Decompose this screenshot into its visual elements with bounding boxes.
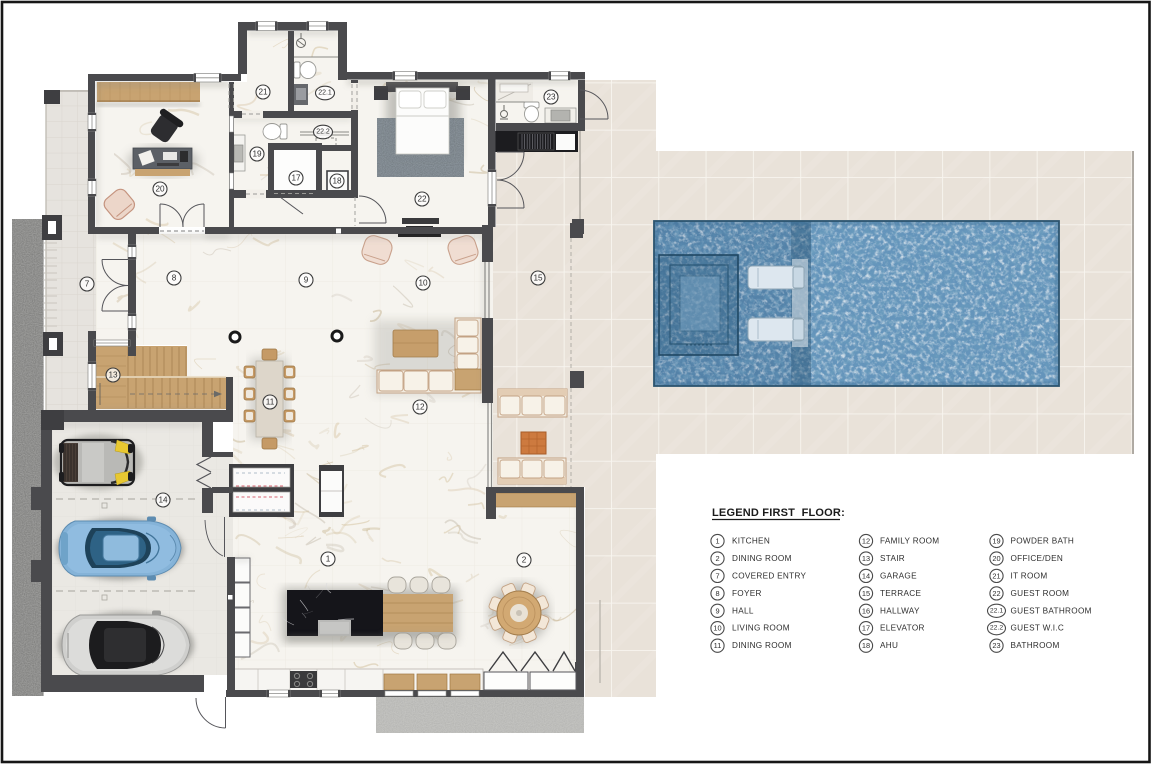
svg-text:DINING ROOM: DINING ROOM [732,554,792,563]
svg-text:11: 11 [266,398,275,407]
svg-text:GUEST BATHROOM: GUEST BATHROOM [1011,606,1092,615]
svg-text:HALL: HALL [732,606,754,615]
svg-text:7: 7 [85,280,90,289]
svg-text:14: 14 [158,496,168,505]
svg-text:23: 23 [992,641,1000,650]
svg-text:23: 23 [546,93,556,102]
svg-text:22.2: 22.2 [990,625,1003,632]
svg-text:14: 14 [862,571,870,580]
svg-text:8: 8 [172,274,177,283]
svg-text:8: 8 [715,589,719,598]
svg-text:2: 2 [715,554,719,563]
svg-text:GARAGE: GARAGE [880,571,917,580]
svg-text:1: 1 [326,555,331,564]
svg-text:22.1: 22.1 [318,90,332,97]
svg-text:22.1: 22.1 [990,607,1003,614]
svg-text:9: 9 [304,276,309,285]
svg-text:COVERED ENTRY: COVERED ENTRY [732,571,807,580]
svg-text:POWDER BATH: POWDER BATH [1011,537,1075,546]
svg-text:HALLWAY: HALLWAY [880,606,920,615]
svg-text:19: 19 [252,150,262,159]
svg-text:13: 13 [108,371,118,380]
svg-text:22.2: 22.2 [316,129,330,136]
svg-text:TERRACE: TERRACE [880,589,921,598]
svg-text:GUEST ROOM: GUEST ROOM [1011,589,1070,598]
svg-text:21: 21 [992,571,1000,580]
svg-text:AHU: AHU [880,641,898,650]
svg-text:21: 21 [258,88,268,97]
svg-text:20: 20 [155,185,165,194]
svg-text:KITCHEN: KITCHEN [732,537,770,546]
svg-text:22: 22 [992,589,1000,598]
svg-text:10: 10 [418,279,428,288]
svg-text:11: 11 [714,641,722,650]
svg-text:16: 16 [862,606,870,615]
svg-text:9: 9 [715,606,719,615]
svg-text:18: 18 [862,641,870,650]
svg-text:DINING ROOM: DINING ROOM [732,641,792,650]
svg-text:10: 10 [713,624,721,633]
svg-text:22: 22 [417,195,427,204]
svg-text:15: 15 [862,589,870,598]
svg-text:7: 7 [715,571,719,580]
svg-text:IT ROOM: IT ROOM [1011,571,1048,580]
svg-text:ELEVATOR: ELEVATOR [880,624,925,633]
svg-text:12: 12 [415,403,425,412]
svg-text:19: 19 [992,537,1000,546]
svg-text:2: 2 [522,556,527,565]
svg-text:FAMILY ROOM: FAMILY ROOM [880,537,939,546]
svg-text:17: 17 [862,624,870,633]
svg-text:FOYER: FOYER [732,589,762,598]
svg-text:18: 18 [332,177,342,186]
svg-text:17: 17 [291,174,301,183]
svg-text:15: 15 [533,274,543,283]
svg-text:LIVING ROOM: LIVING ROOM [732,624,790,633]
svg-text:20: 20 [992,554,1000,563]
svg-text:STAIR: STAIR [880,554,905,563]
svg-text:BATHROOM: BATHROOM [1011,641,1060,650]
svg-text:12: 12 [862,537,870,546]
svg-text:1: 1 [715,537,719,546]
svg-text:GUEST W.I.C: GUEST W.I.C [1011,624,1065,633]
svg-text:13: 13 [862,554,870,563]
svg-text:LEGEND FIRST FLOOR:: LEGEND FIRST FLOOR: [712,507,845,519]
svg-text:OFFICE/DEN: OFFICE/DEN [1011,554,1064,563]
